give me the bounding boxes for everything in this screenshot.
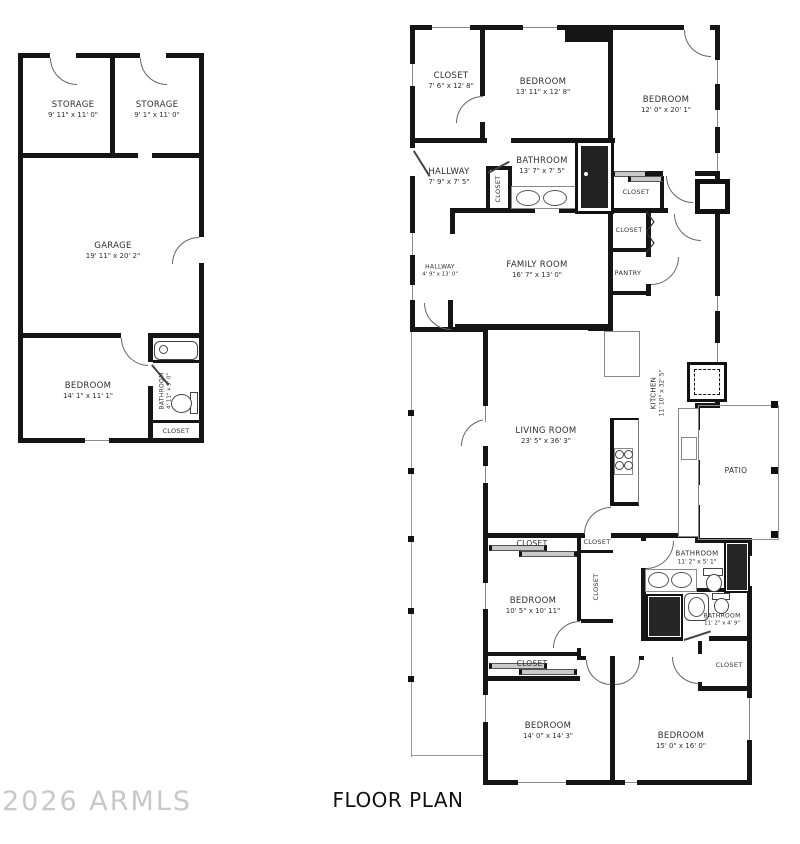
window [483,406,488,422]
room-label-bedroom-se: BEDROOM 15' 0" x 16' 0" [656,731,706,751]
wall [608,291,651,295]
room-label-bedroom-mid: BEDROOM 10' 5" x 10' 11" [506,596,561,616]
room-label-hallway-front: HALLWAY 7' 9" x 7' 5" [428,167,469,187]
room-label-patio: PATIO [725,466,748,476]
door-arc [553,621,580,648]
window [410,64,415,86]
room-label-bedroom-left: BEDROOM 14' 1" x 11' 1" [63,381,113,401]
room-label-storage-left: STORAGE 9' 11" x 11' 0" [48,100,98,120]
fence-post [408,468,414,474]
window [483,695,488,722]
shower-door-icon [581,146,608,208]
water-heater-icon [695,179,730,214]
fence-post [408,676,414,682]
patio-post [771,401,778,408]
stove-burner-icon [624,461,633,470]
sliding-door-icon [519,551,577,557]
room-label-closet-s1: CLOSET [517,539,548,549]
fireplace-icon [565,27,608,42]
door-arc [586,660,611,685]
room-label-closet-se: CLOSET [715,661,742,669]
wall [698,686,752,691]
door-arc [672,657,699,684]
floor-plan-canvas: STORAGE 9' 11" x 11' 0" STORAGE 9' 1" x … [0,0,800,844]
window [715,153,720,171]
door-arc [666,176,693,203]
room-label-bedroom-ne: BEDROOM 12' 0" x 20' 1" [641,95,691,115]
door-opening [199,237,204,263]
door-arc [646,541,674,569]
window [715,343,720,362]
wall [150,360,202,363]
door-opening [487,138,511,143]
room-label-bathroom-left: BATHROOM 4' 11" x 9' 0" [159,372,174,409]
wall [455,324,613,330]
window [85,438,109,443]
window [518,780,566,785]
stove-burner-icon [624,450,633,459]
tub-faucet-icon [159,345,168,354]
wall [483,676,580,681]
kitchen-counter [604,331,640,377]
patio-post [771,467,778,474]
window [715,110,720,127]
door-opening [668,208,698,213]
room-label-hall-closet: CLOSET [494,175,502,202]
room-label-family-room: FAMILY ROOM 16' 7" x 13' 0" [506,260,567,280]
wall [18,333,204,338]
fence-line [411,332,412,757]
door-arc [121,338,149,366]
room-label-closet-mid: CLOSET [615,226,642,234]
bifold-door-icon [646,211,656,253]
toilet-icon [171,394,192,413]
wall [18,53,23,443]
shower-icon [575,140,614,214]
room-label-bedroom-front: BEDROOM 13' 11" x 12' 8" [516,77,571,97]
watermark: 2026 ARMLS [2,786,192,817]
room-label-kitchen: KITCHEN 11' 10" x 32' 5" [650,370,667,417]
door-opening [138,153,152,158]
window [432,25,470,30]
door-arc [140,58,167,85]
room-label-closet-left: CLOSET [162,427,189,435]
stove-burner-icon [615,450,624,459]
door-arc [615,660,640,685]
door-arc [651,257,679,285]
door-arc [424,303,451,330]
sink-icon [516,190,540,206]
patio-post [771,531,778,538]
wall [450,208,455,234]
window [715,60,720,84]
room-label-closet-sw: CLOSET [517,659,548,669]
fence-post [408,608,414,614]
stove-burner-icon [615,461,624,470]
sink-icon [648,572,669,588]
wall [578,550,613,553]
wall [608,248,651,252]
wall [150,420,202,423]
window [523,25,557,30]
fence-line [411,755,483,756]
door-arc [172,237,199,264]
room-label-bathroom-master: BATHROOM 11' 2" x 5' 1" [676,550,719,567]
fence-post [408,536,414,542]
sink-icon [671,572,692,588]
room-label-closet-s3: CLOSET [592,573,600,600]
door-arc [684,30,711,57]
sliding-door-icon [628,176,664,182]
kitchen-sink-icon [681,437,697,460]
wall [581,619,613,623]
room-label-pantry: PANTRY [615,269,642,277]
wall [480,25,485,143]
room-label-bathroom-hall: BATHROOM 11' 2" x 4' 9" [703,613,740,628]
room-label-garage: GARAGE 19' 11" x 20' 2" [86,241,141,261]
door-arc [674,214,701,241]
room-label-closet-front: CLOSET 7' 6" x 12' 8" [428,71,474,91]
toilet-icon [706,574,722,592]
window [410,233,415,255]
sink-icon [543,190,567,206]
door-arc [584,507,611,534]
window [483,583,488,609]
window [747,698,752,740]
sink-icon [688,597,705,617]
page-title: FLOOR PLAN [333,788,464,812]
sliding-door-icon [519,669,577,675]
wall [608,208,613,331]
door-arc [461,419,488,446]
window [715,296,720,311]
room-label-living-room: LIVING ROOM 23' 5" x 36' 3" [515,426,576,446]
room-label-bedroom-sw: BEDROOM 14' 0" x 14' 3" [523,721,573,741]
wall [483,652,580,656]
shower-icon [646,594,683,639]
wall [18,438,204,443]
window [483,466,488,483]
fence-post [408,410,414,416]
wall [110,53,115,158]
room-label-storage-right: STORAGE 9' 1" x 11' 0" [134,100,180,120]
shower-handle-icon [584,172,588,176]
room-label-closet-s2: CLOSET [583,538,610,546]
window [410,285,415,300]
kitchen-counter [678,408,699,537]
skylight-icon [687,362,727,402]
room-label-hallway-mid: HALLWAY 4' 9" x 13' 0" [422,264,458,279]
door-arc [456,96,483,123]
wall [18,153,204,158]
room-label-bathroom-front: BATHROOM 13' 7" x 7' 5" [516,156,568,176]
shower-icon [724,541,750,593]
door-arc [50,58,77,85]
room-label-closet-ne: CLOSET [622,188,649,196]
window [625,780,637,785]
